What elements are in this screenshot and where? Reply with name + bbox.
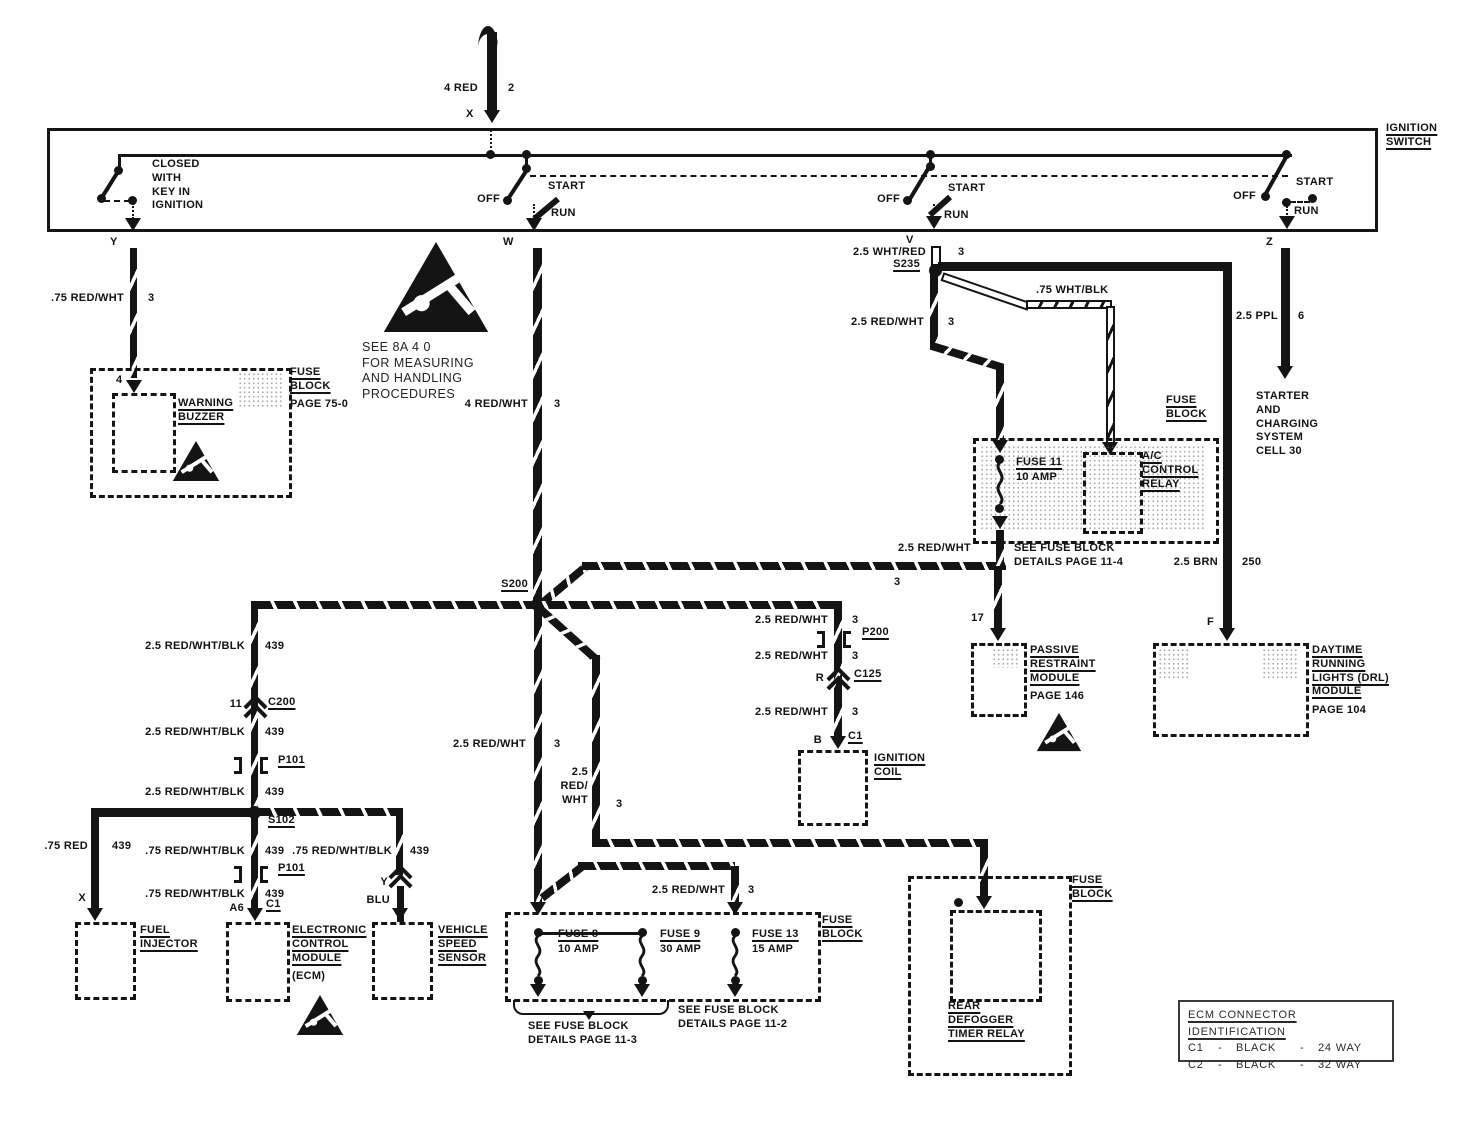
wire-label-4-red: 4 RED [426,82,478,96]
wire-label-defog: 2.5 RED/ WHT [554,766,588,807]
circuit-label-439a: 439 [265,640,284,654]
arrowhead-prm [990,628,1006,641]
connector-p101-label: P101 [278,754,305,768]
splice-s235-label: S235 [870,258,920,272]
arrowhead-ecm [247,908,263,921]
table-cell-dash: - [1300,1040,1318,1057]
ecm-sub: (ECM) [292,970,325,984]
wire-defog-horizontal [592,839,988,847]
fuse-brace-tick [583,1011,595,1020]
circuit-label-439e: 439 [265,845,284,859]
defogger-relay-box [950,910,1042,1002]
fuse13-rating: 15 AMP [752,943,793,957]
main-fuse-block-box [505,912,821,1002]
wire-prm-vertical [994,566,1002,630]
circuit-label-3k: 3 [748,884,754,898]
wire-label-coil3: 2.5 RED/WHT [740,706,828,720]
terminal-f-label: F [1198,616,1214,630]
wire-s235-jog [931,342,1004,371]
connector-p101-left [234,757,242,774]
fuse9-symbol [635,936,649,976]
wire-25-ppl [1281,248,1290,368]
buzzer-name: WARNING BUZZER [178,397,233,425]
esd-note-text: SEE 8A 4 0 FOR MEASURING AND HANDLING PR… [362,340,474,403]
drl-name: DAYTIME RUNNING LIGHTS (DRL) MODULE [1312,644,1389,699]
terminal-x-label: X [466,108,474,122]
wire-s102-left [95,808,255,817]
stipple-patch [238,372,282,408]
wire-label-75-red: .75 RED [38,840,88,854]
sw1-bus-dot-a [486,150,495,159]
table-row: C1 - BLACK - 24 WAY [1188,1040,1384,1057]
wire-s200-horizontal [255,601,842,609]
sw3-off-contact [1261,192,1270,201]
sw1-run-label: RUN [551,207,576,221]
sw1-start-label: START [548,180,585,194]
wire-s102-right [255,808,403,816]
table-cell-color: BLACK [1236,1057,1300,1074]
fuse9-name: FUSE 9 [660,928,700,942]
connector-p200-label: P200 [862,626,889,640]
pin-a6-label: A6 [218,902,244,916]
sw1-entry-dotted [490,130,492,152]
wire-4-redwht [533,248,542,604]
stipple-patch [1262,648,1298,678]
esd-warning-icon [172,440,220,482]
wire-label-rwb1: 2.5 RED/WHT/BLK [135,640,245,654]
wire-label-f13: 2.5 RED/WHT [645,884,725,898]
ac-fuse-block-label: FUSE BLOCK [1166,394,1207,422]
wire-label-blu: BLU [350,894,390,908]
sw2-start-label: START [948,182,985,196]
splice-s102-label: S102 [268,814,295,828]
circuit-label-439b: 439 [265,726,284,740]
table-row: C2 - BLACK - 32 WAY [1188,1057,1384,1074]
circuit-label-250: 250 [1242,556,1261,570]
wire-25-brn-vertical [1223,262,1232,630]
ac-see-ref: SEE FUSE BLOCK DETAILS PAGE 11-4 [1014,542,1123,570]
fuse8-rating: 10 AMP [558,943,599,957]
wire-prm-horizontal [582,562,1006,570]
sw3-off-label: OFF [1226,190,1256,204]
ecm-box [226,922,290,1002]
terminal-x-fuel-label: X [70,892,86,906]
arrowhead-y-inside [125,218,141,231]
fuse11-symbol [993,462,1007,504]
wire-defog-vertical [592,655,600,847]
ignition-coil-box [798,750,868,826]
circuit-label-3j: 3 [616,798,622,812]
wire-75-red [91,808,99,908]
pin-r-label: R [808,672,824,686]
esd-warning-icon [296,994,344,1036]
key-switch-dash [104,200,130,202]
connector-p101b-left [234,866,242,883]
connector-y-label: Y [372,876,388,890]
wire-4-red [487,32,497,114]
connector-p101-right [260,757,268,774]
wire-label-75-redwht: .75 RED/WHT [42,292,124,306]
circuit-label-3a: 3 [148,292,154,306]
arrowhead-fuse13-out [727,984,743,997]
buzzer-terminal-label: 4 [116,374,122,388]
wire-label-coil2: 2.5 RED/WHT [740,650,828,664]
sw1-off-label: OFF [468,193,500,207]
wire-f13-vertical [731,866,739,906]
table-cell-conn: C1 [1188,1040,1218,1057]
connector-p101b-label: P101 [278,862,305,876]
sw2-off-label: OFF [870,193,900,207]
pin-b-label: B [804,734,822,748]
fuse8-symbol [531,936,545,976]
arrowhead-starter [1277,366,1293,379]
ecm-name: ELECTRONIC CONTROL MODULE [292,924,367,965]
esd-warning-icon-large [382,240,490,334]
sw2-off-contact [903,196,912,205]
wire-f13-horizontal [578,862,735,870]
wire-fuse11-stub [996,530,1004,566]
wire-label-rwb3: 2.5 RED/WHT/BLK [130,786,245,800]
table-cell-ways: 32 WAY [1318,1057,1378,1074]
defogger-fuse-block-label: FUSE BLOCK [1072,874,1113,902]
splice-s200-label: S200 [486,578,528,592]
wire-label-s235-down: 2.5 RED/WHT [838,316,924,330]
wire-label-whtblk: .75 WHT/BLK [1036,284,1108,298]
fuel-injector-box [75,922,136,1000]
circuit-label-3b: 3 [554,398,560,412]
arrowhead-fuse13-in [727,902,743,915]
table-cell-dash: - [1300,1057,1318,1074]
table-cell-ways: 24 WAY [1318,1040,1378,1057]
wire-mid-vertical [534,607,542,907]
circuit-label-3i: 3 [554,738,560,752]
wire-label-prm: 2.5 RED/WHT [898,542,971,556]
sw3-start-dot [1308,194,1317,203]
sw3-run-label: RUN [1294,205,1319,219]
fuse8-name: FUSE 8 [558,928,598,942]
arrowhead-buzzer [126,380,142,393]
switch-dashed-line [530,175,1288,177]
arrowhead-vss [392,908,408,921]
connector-p101b-right [260,866,268,883]
switch-bus-line [118,154,1292,157]
wire-label-vss: .75 RED/WHT/BLK [292,845,392,859]
vss-box [372,922,433,1000]
arrowhead-drl [1219,628,1235,641]
connector-c200-label: C200 [268,696,296,710]
wire-label-4-redwht: 4 RED/WHT [446,398,528,412]
sw3-dash [1290,201,1310,203]
sw3-start-label: START [1296,176,1333,190]
terminal-y-label: Y [110,236,118,250]
ignition-switch-title: IGNITION SWITCH [1386,122,1437,150]
circuit-label-3f: 3 [852,614,858,628]
wire-whtblk-horizontal [1026,300,1112,309]
circuit-label-3e: 3 [894,576,900,590]
arrowhead-coil [830,736,846,749]
fuse13-name: FUSE 13 [752,928,799,942]
fuse9-rating: 30 AMP [660,943,701,957]
terminal-w-label: W [503,236,514,250]
wire-label-25-ppl: 2.5 PPL [1236,310,1278,324]
arrowhead-v-inside [926,216,942,229]
esd-warning-icon [1036,712,1082,752]
ignition-coil-name: IGNITION COIL [874,752,925,780]
wire-label-ecm1: .75 RED/WHT/BLK [135,845,245,859]
table-cell-dash: - [1218,1057,1236,1074]
circuit-label-439c: 439 [265,786,284,800]
terminal-z-label: Z [1266,236,1273,250]
see-ref-11-3: SEE FUSE BLOCK DETAILS PAGE 11-3 [528,1020,637,1048]
drl-page: PAGE 104 [1312,704,1366,718]
wire-label-25-brn: 2.5 BRN [1156,556,1218,570]
circuit-label-439d: 439 [112,840,131,854]
circuit-label-3c: 3 [958,246,964,260]
vss-name: VEHICLE SPEED SENSOR [438,924,488,965]
wire-label-mid: 2.5 RED/WHT [438,738,526,752]
table-cell-color: BLACK [1236,1040,1300,1057]
prm-name: PASSIVE RESTRAINT MODULE [1030,644,1096,685]
fuse13-symbol [728,936,742,976]
fuse9-tap-line [540,932,643,935]
connector-c1-ecm-label: C1 [266,898,281,912]
sw2-run-label: RUN [944,209,969,223]
wire-whtblk-vertical [1106,306,1115,446]
connector-c1-coil-label: C1 [848,730,863,744]
circuit-label-3h: 3 [852,706,858,720]
ecm-table-title: ECM CONNECTOR IDENTIFICATION [1188,1007,1384,1040]
sw1-off-contact [503,196,512,205]
wire-s235-down [930,274,938,350]
ac-relay-name: A/C CONTROL RELAY [1142,450,1198,491]
ecm-connector-table: ECM CONNECTOR IDENTIFICATION C1 - BLACK … [1178,1000,1394,1062]
connector-p200-right [843,631,851,648]
wiring-diagram-canvas: 4 RED 2 X IGNITION SWITCH CLOSED WITH KE… [0,0,1472,1136]
fuse11-name: FUSE 11 [1016,456,1062,470]
wire-label-ecm2: .75 RED/WHT/BLK [138,888,245,902]
ac-relay-box [1083,452,1143,534]
wire-label-coil1: 2.5 RED/WHT [740,614,828,628]
wire-whtblk-diagonal [941,272,1031,310]
buzzer-ref-page: PAGE 75-0 [290,398,348,412]
arrowhead-x [484,110,500,123]
key-note: CLOSED WITH KEY IN IGNITION [152,158,203,213]
buzzer-inner-box [112,393,176,473]
buzzer-ref: FUSE BLOCK [290,366,331,394]
connector-p200-left [817,631,825,648]
arrowhead-fuse11-in [992,440,1008,453]
key-switch-dotted [132,203,134,219]
starter-dest-text: STARTER AND CHARGING SYSTEM CELL 30 [1256,390,1318,459]
wire-ecm-vertical [251,813,258,915]
wire-fuse11-feed [996,364,1004,440]
circuit-label-6: 6 [1298,310,1304,324]
see-ref-11-2: SEE FUSE BLOCK DETAILS PAGE 11-2 [678,1004,787,1032]
connector-c125-label: C125 [854,668,882,682]
ignition-switch-box [47,128,1378,232]
arrowhead-fuse11-out [992,516,1008,529]
table-cell-dash: - [1218,1040,1236,1057]
fuse11-bottom-dot [995,504,1004,513]
circuit-label-3g: 3 [852,650,858,664]
circuit-label-3d: 3 [948,316,954,330]
defogger-name: REAR DEFOGGER TIMER RELAY [948,1000,1025,1041]
terminal-17-label: 17 [962,612,984,626]
prm-page: PAGE 146 [1030,690,1084,704]
arrowhead-w-inside [526,218,542,231]
arrowhead-z-inside [1279,216,1295,229]
stipple-patch [992,648,1018,668]
arrowhead-fuse9-out [634,984,650,997]
defogger-terminal-dot [954,898,963,907]
circuit-label-439g: 439 [410,845,429,859]
wire-label-rwb2: 2.5 RED/WHT/BLK [138,726,245,740]
table-cell-conn: C2 [1188,1057,1218,1074]
wire-75-redwht [130,248,137,378]
arrowhead-fuel [87,908,103,921]
wire-25-brn-horizontal [938,262,1232,271]
arrowhead-fuse8-out [530,984,546,997]
arrowhead-fuse8-in [530,902,546,915]
fuse11-rating: 10 AMP [1016,471,1057,485]
circuit-label-2: 2 [508,82,514,96]
pin-11-label: 11 [220,698,242,712]
fuel-injector-name: FUEL INJECTOR [140,924,198,952]
stipple-patch [1158,648,1190,678]
main-fuse-block-label: FUSE BLOCK [822,914,863,942]
